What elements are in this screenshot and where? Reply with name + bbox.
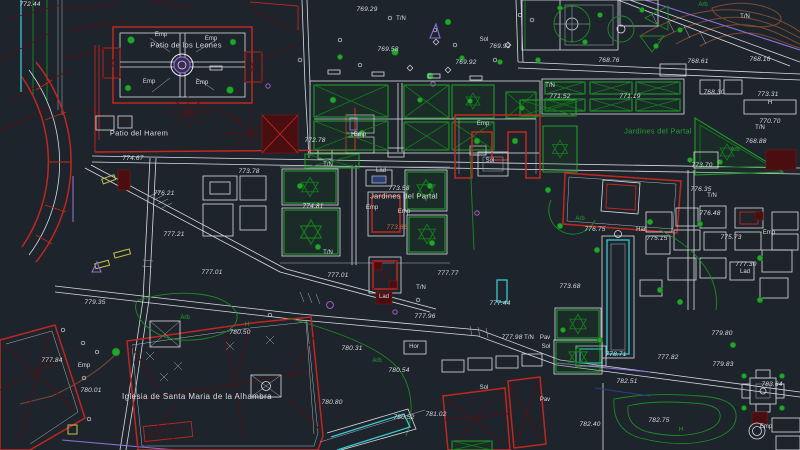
layer-tag: Lad — [379, 294, 389, 300]
layer-tag: Lad — [376, 168, 386, 174]
elevation-label: 776.21 — [153, 191, 174, 198]
layer-tag: Har — [351, 132, 361, 138]
elevation-label: 769.58 — [377, 47, 398, 54]
layer-tag: Arb — [180, 315, 189, 321]
elevation-label: 782.75 — [648, 418, 669, 425]
layer-tag: Pav — [540, 397, 550, 403]
elevation-label: 768.88 — [745, 139, 766, 146]
elevation-label: 779.35 — [84, 300, 105, 307]
elevation-label: 777.98 — [501, 335, 522, 342]
place-label: Iglesia de Santa Maria de la Alhambra — [122, 393, 272, 401]
place-label: Jardines del Partal — [370, 192, 438, 200]
layer-tag: Emp — [143, 79, 155, 85]
elevation-label: 775.73 — [720, 235, 741, 242]
elevation-label: 773.78 — [238, 169, 259, 176]
elevation-label: 773.31 — [757, 92, 778, 99]
elevation-label: 779.80 — [711, 331, 732, 338]
elevation-label: 782.40 — [579, 422, 600, 429]
elevation-label: 768.61 — [687, 59, 708, 66]
elevation-label: 777.82 — [657, 355, 678, 362]
elevation-label: 776.48 — [699, 211, 720, 218]
cad-viewport[interactable]: Patio de los LeonesPatio del HaremJardin… — [0, 0, 800, 450]
layer-tag: H — [245, 322, 249, 328]
elevation-label: 777.30 — [735, 262, 756, 269]
elevation-label: 777.96 — [414, 314, 435, 321]
layer-tag: Emp — [398, 209, 410, 215]
layer-tag: T/N — [323, 250, 333, 256]
layer-tag: Lad — [740, 269, 750, 275]
elevation-label: 773.70 — [691, 163, 712, 170]
elevation-label: 777.44 — [489, 301, 510, 308]
layer-tag: T/N — [707, 193, 717, 199]
elevation-label: 774.67 — [122, 156, 143, 163]
layer-tag: Har — [636, 227, 646, 233]
layer-tag: T/N — [396, 16, 406, 22]
elevation-label: 773.58 — [388, 186, 409, 193]
place-label: Patio del Harem — [110, 129, 168, 137]
layer-tag: Arb — [730, 147, 739, 153]
layer-tag: H — [679, 427, 683, 433]
elevation-label: 778.71 — [605, 352, 626, 359]
elevation-label: 779.83 — [712, 362, 733, 369]
elevation-label: 774.81 — [302, 204, 323, 211]
elevation-label: 777.21 — [163, 232, 184, 239]
layer-tag: Emp — [763, 230, 775, 236]
layer-tag: Sol — [542, 344, 551, 350]
elevation-label: 777.01 — [327, 273, 348, 280]
layer-tag: Emp — [78, 363, 90, 369]
layer-tag: Sol — [480, 37, 489, 43]
layer-tag: T/N — [545, 83, 555, 89]
layer-tag: H — [768, 100, 772, 106]
elevation-label: 783.64 — [761, 382, 782, 389]
layer-tag: Emp — [366, 205, 378, 211]
layer-tag: Arb — [698, 2, 707, 8]
layer-tag: Emp — [155, 32, 167, 38]
elevation-label: 782.51 — [616, 379, 637, 386]
elevation-label: 777.01 — [201, 270, 222, 277]
layer-tag: T/N — [416, 285, 426, 291]
elevation-label: 777.84 — [41, 358, 62, 365]
elevation-label: 773.68 — [559, 284, 580, 291]
layer-tag: T/N — [740, 14, 750, 20]
elevation-label: 780.80 — [321, 400, 342, 407]
label-layer: Patio de los LeonesPatio del HaremJardin… — [0, 0, 800, 450]
elevation-label: 771.52 — [549, 94, 570, 101]
layer-tag: Sol — [480, 385, 489, 391]
elevation-label: 781.02 — [425, 412, 446, 419]
layer-tag: T/N — [755, 125, 765, 131]
elevation-label: 773.66 — [386, 225, 407, 232]
elevation-label: 768.30 — [703, 90, 724, 97]
elevation-label: 772.78 — [304, 138, 325, 145]
layer-tag: Sol — [486, 158, 495, 164]
layer-tag: Emp — [196, 80, 208, 86]
layer-tag: Pav — [540, 335, 550, 341]
place-label: Patio de los Leones — [150, 41, 222, 49]
layer-tag: T/N — [524, 335, 534, 341]
place-label: Jardines del Partal — [624, 127, 692, 135]
layer-tag: Emp — [205, 36, 217, 42]
elevation-label: 768.16 — [749, 57, 770, 64]
elevation-label: 771.19 — [619, 94, 640, 101]
layer-tag: Hor — [409, 344, 419, 350]
elevation-label: 769.92 — [455, 60, 476, 67]
elevation-label: 780.52 — [393, 415, 414, 422]
elevation-label: 780.31 — [341, 346, 362, 353]
elevation-label: 769.92 — [489, 44, 510, 51]
layer-tag: Arb — [372, 358, 381, 364]
elevation-label: 777.77 — [437, 271, 458, 278]
elevation-label: 780.54 — [388, 368, 409, 375]
layer-tag: Arb — [575, 216, 584, 222]
elevation-label: 780.01 — [80, 388, 101, 395]
elevation-label: 776.75 — [584, 227, 605, 234]
layer-tag: Emp — [477, 121, 489, 127]
elevation-label: 769.29 — [356, 7, 377, 14]
elevation-label: 768.76 — [598, 58, 619, 65]
elevation-label: 780.50 — [229, 330, 250, 337]
elevation-label: 772.44 — [19, 2, 40, 9]
layer-tag: Emp — [760, 424, 772, 430]
layer-tag: T/N — [323, 162, 333, 168]
elevation-label: 775.15 — [646, 236, 667, 243]
